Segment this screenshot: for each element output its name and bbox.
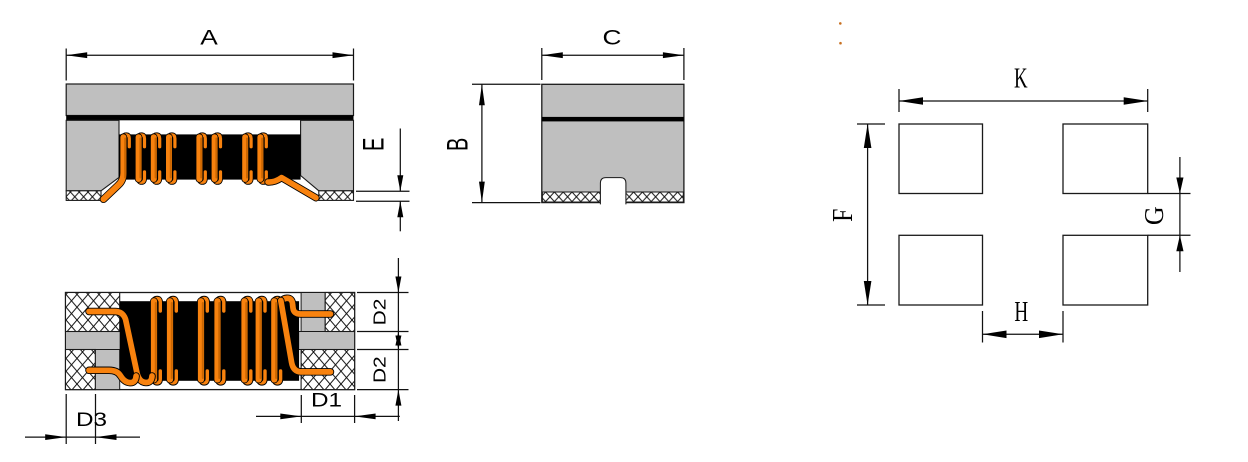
svg-text:G: G [1138, 206, 1169, 225]
svg-text:E: E [358, 138, 391, 151]
svg-text:K: K [1014, 63, 1028, 95]
svg-text:D2: D2 [371, 299, 390, 326]
svg-text:D3: D3 [76, 409, 107, 431]
svg-text:F: F [827, 209, 858, 222]
svg-text:B: B [441, 138, 474, 151]
svg-text:C: C [603, 26, 622, 50]
svg-text:D1: D1 [311, 389, 342, 411]
svg-text:A: A [200, 26, 218, 50]
svg-text:D2: D2 [371, 356, 390, 383]
svg-text:H: H [1014, 296, 1028, 328]
